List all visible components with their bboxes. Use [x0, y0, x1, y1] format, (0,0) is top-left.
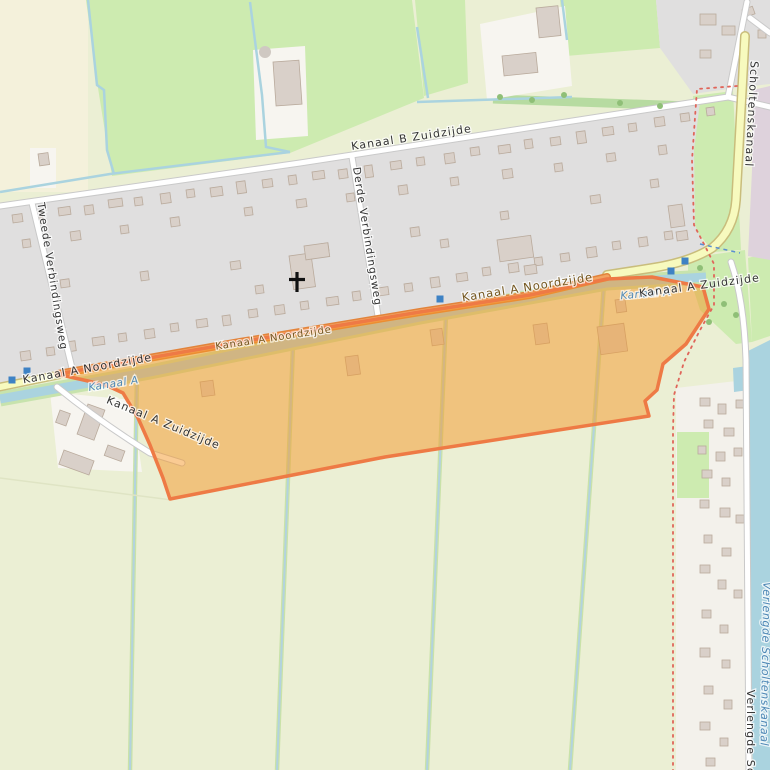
- tree-icon: [721, 301, 727, 307]
- building: [716, 452, 725, 461]
- blue-square-marker[interactable]: [668, 268, 675, 275]
- building: [700, 500, 709, 508]
- map-canvas[interactable]: Kanaal B ZuidzijdeTweede VerbindingswegD…: [0, 0, 770, 770]
- blue-square-marker[interactable]: [9, 377, 16, 384]
- building: [700, 648, 710, 657]
- building: [364, 165, 374, 178]
- building: [500, 211, 509, 220]
- building: [144, 329, 155, 339]
- building: [586, 247, 597, 258]
- verlengde-scholtenskanaal-road-label: Verlengde Scholtenskanaal: [744, 690, 757, 770]
- building: [58, 206, 71, 216]
- building: [108, 198, 123, 208]
- building: [524, 264, 537, 275]
- building: [606, 153, 616, 162]
- tree-icon: [497, 94, 503, 100]
- building: [236, 181, 247, 194]
- building: [718, 580, 726, 589]
- building: [470, 147, 480, 156]
- building: [536, 6, 561, 38]
- building: [700, 722, 710, 730]
- building: [724, 428, 734, 436]
- building: [702, 610, 711, 618]
- building: [734, 590, 742, 598]
- building: [60, 279, 70, 288]
- building: [326, 296, 339, 306]
- building: [430, 277, 440, 288]
- building: [416, 157, 425, 166]
- building: [170, 323, 179, 332]
- building: [722, 478, 730, 486]
- building: [590, 195, 601, 204]
- building: [440, 239, 449, 248]
- building: [46, 347, 55, 356]
- building: [274, 305, 285, 315]
- building: [502, 169, 513, 179]
- building: [404, 283, 413, 292]
- building: [560, 253, 570, 262]
- blue-square-marker[interactable]: [682, 258, 689, 265]
- building: [654, 117, 665, 127]
- building: [170, 217, 180, 227]
- building: [702, 470, 712, 478]
- building: [312, 170, 325, 180]
- building: [196, 318, 208, 327]
- building: [300, 301, 309, 310]
- building: [296, 199, 307, 208]
- building: [12, 214, 23, 223]
- building: [262, 179, 273, 188]
- building: [736, 400, 744, 408]
- building: [140, 271, 149, 281]
- building: [22, 239, 31, 248]
- building: [700, 565, 710, 573]
- building: [186, 189, 195, 198]
- tree-icon: [733, 312, 739, 318]
- building: [680, 113, 690, 122]
- building: [668, 204, 685, 228]
- building: [450, 177, 459, 186]
- building: [638, 237, 648, 247]
- building: [482, 267, 491, 276]
- building: [456, 272, 468, 281]
- tank-circle: [259, 46, 271, 58]
- meadow-patch-right-strip: [677, 432, 709, 498]
- building: [244, 207, 253, 216]
- building: [658, 145, 667, 155]
- tree-icon: [617, 100, 623, 106]
- building: [230, 261, 241, 270]
- building: [722, 548, 731, 556]
- building: [118, 333, 127, 342]
- building: [700, 398, 710, 406]
- building: [734, 448, 742, 456]
- building: [498, 144, 511, 154]
- building: [248, 309, 258, 318]
- building: [550, 137, 561, 146]
- building: [676, 230, 688, 240]
- building: [700, 14, 716, 25]
- building: [222, 315, 231, 326]
- building: [502, 52, 538, 75]
- building: [602, 126, 614, 135]
- building: [410, 227, 420, 237]
- building: [720, 508, 730, 517]
- map-viewport[interactable]: Kanaal B ZuidzijdeTweede VerbindingswegD…: [0, 0, 770, 770]
- building: [704, 686, 713, 694]
- tree-icon: [697, 265, 703, 271]
- building: [700, 50, 711, 58]
- building: [704, 420, 713, 428]
- building: [346, 193, 355, 202]
- building: [706, 107, 715, 116]
- tree-icon: [561, 92, 567, 98]
- building: [38, 153, 50, 166]
- building: [338, 169, 348, 179]
- building: [497, 235, 534, 262]
- building: [304, 243, 330, 260]
- building: [698, 446, 706, 454]
- building: [720, 738, 728, 746]
- tree-icon: [529, 97, 535, 103]
- building: [84, 205, 94, 215]
- building: [255, 285, 264, 294]
- building: [20, 351, 31, 361]
- building: [706, 758, 715, 766]
- building: [273, 60, 302, 106]
- building: [720, 625, 728, 633]
- building: [444, 153, 455, 164]
- building: [722, 660, 730, 668]
- building: [120, 225, 129, 234]
- building: [508, 263, 519, 273]
- building: [664, 231, 673, 240]
- building: [722, 26, 735, 35]
- building: [288, 175, 297, 185]
- building: [736, 515, 744, 523]
- building: [554, 163, 563, 172]
- building: [704, 535, 712, 543]
- building: [612, 241, 621, 250]
- building: [390, 160, 402, 169]
- building: [92, 336, 105, 346]
- building: [724, 700, 732, 709]
- building: [210, 186, 223, 197]
- building: [70, 231, 81, 241]
- tree-icon: [706, 319, 712, 325]
- building: [628, 123, 637, 132]
- blue-square-marker[interactable]: [437, 296, 444, 303]
- building: [576, 131, 587, 144]
- building: [650, 179, 659, 188]
- building: [718, 404, 726, 414]
- building: [134, 197, 143, 206]
- building: [398, 185, 408, 195]
- building: [160, 193, 171, 204]
- tree-icon: [657, 103, 663, 109]
- building: [352, 291, 361, 301]
- building: [524, 139, 533, 149]
